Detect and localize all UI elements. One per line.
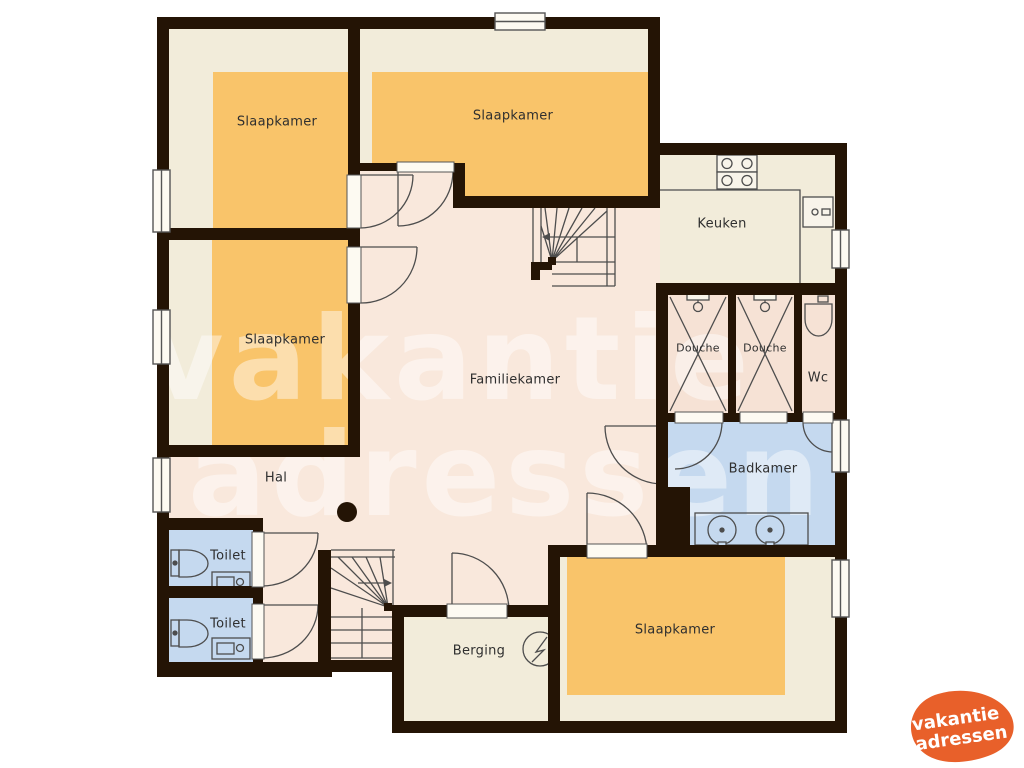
room-label-keuken: Keuken [697, 217, 746, 232]
door-frame [252, 532, 264, 587]
door-frame [447, 604, 507, 618]
door-frame [347, 247, 361, 303]
room-label-douche-1: Douche [676, 342, 720, 355]
room-label-familiekamer: Familiekamer [470, 373, 561, 388]
floorplan-canvas: vakantie adressen [0, 0, 1024, 768]
door-frame [587, 544, 647, 558]
room-label-toilet-2: Toilet [210, 617, 246, 632]
window [153, 310, 170, 364]
window [495, 13, 545, 30]
room-label-berging: Berging [453, 644, 506, 659]
room-label-hal: Hal [265, 471, 287, 486]
door-frame [675, 412, 723, 423]
room-label-toilet-1: Toilet [210, 549, 246, 564]
room-label-slaapkamer-2: Slaapkamer [473, 109, 553, 124]
door-frame [740, 412, 787, 423]
door-frame [803, 412, 833, 423]
door-frame [347, 175, 361, 228]
room-label-badkamer: Badkamer [729, 462, 798, 477]
window [832, 420, 849, 472]
room-label-slaapkamer-1: Slaapkamer [237, 115, 317, 130]
window [153, 170, 170, 232]
room-label-slaapkamer-4: Slaapkamer [635, 623, 715, 638]
door-frame [252, 604, 264, 659]
brand-logo: vakantie adressen [902, 688, 1018, 768]
door-frame [397, 162, 454, 172]
room-label-douche-2: Douche [743, 342, 787, 355]
window [832, 230, 849, 268]
room-label-slaapkamer-3: Slaapkamer [245, 333, 325, 348]
room-label-wc: Wc [808, 371, 829, 386]
window [153, 458, 170, 512]
window [832, 560, 849, 617]
